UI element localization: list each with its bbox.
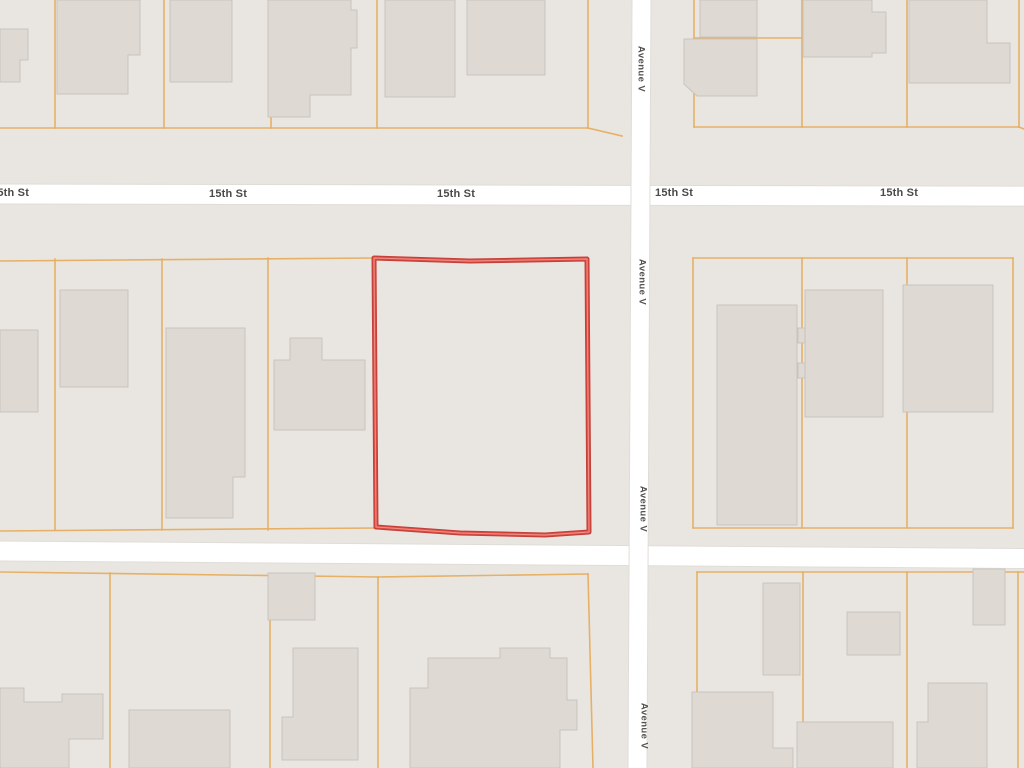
street-label-15th-st: 15th St <box>880 187 918 199</box>
street-label-avenue-v: Avenue V <box>639 703 650 749</box>
street-label-avenue-v: Avenue V <box>637 259 648 305</box>
building-footprint <box>166 328 245 518</box>
street-road[interactable] <box>0 541 1024 569</box>
parcel-boundary-line <box>0 528 376 531</box>
building-footprint <box>170 0 232 82</box>
building-footprint <box>797 722 893 768</box>
building-footprint <box>0 330 38 412</box>
parcel-boundary-line <box>0 258 374 261</box>
building-footprint <box>57 0 140 94</box>
building-footprint <box>0 688 103 768</box>
building-footprint <box>803 0 886 57</box>
building-footprint <box>385 0 455 97</box>
parcel-boundary-line <box>0 572 378 577</box>
parcel-boundary-line <box>588 574 593 768</box>
street-label-15th-st: 15th St <box>655 187 693 199</box>
building-footprint <box>410 648 577 768</box>
street-label-avenue-v: Avenue V <box>638 486 649 532</box>
building-footprint <box>798 328 805 343</box>
building-footprint <box>917 683 987 768</box>
street-label-15th-st: 15th St <box>0 187 29 199</box>
parcel-boundary-line <box>588 128 622 136</box>
map-layers <box>0 0 1024 768</box>
building-footprint <box>847 612 900 655</box>
street-label-15th-st: 15th St <box>437 188 475 200</box>
building-footprint <box>60 290 128 387</box>
selected-parcel-outline-core <box>374 258 589 535</box>
building-footprint <box>903 285 993 412</box>
building-footprint <box>467 0 545 75</box>
building-footprint <box>268 0 357 117</box>
building-footprint <box>763 583 800 675</box>
building-footprint <box>700 0 757 37</box>
selected-parcel-outline-mid <box>374 258 589 535</box>
building-footprint <box>798 363 805 378</box>
parcel-boundary-line <box>378 574 588 577</box>
building-footprint <box>692 692 793 768</box>
building-footprint <box>268 573 315 620</box>
building-footprint <box>129 710 230 768</box>
street-road[interactable] <box>628 0 651 768</box>
map-canvas[interactable]: 15th St 15th St 15th St 15th St 15th St … <box>0 0 1024 768</box>
building-footprint <box>909 0 1010 83</box>
building-footprint <box>0 29 28 82</box>
building-footprint <box>717 305 797 525</box>
building-footprint <box>684 39 757 96</box>
street-label-avenue-v: Avenue V <box>636 46 647 92</box>
building-footprint <box>973 569 1005 625</box>
street-label-15th-st: 15th St <box>209 188 247 200</box>
parcel-boundary-line <box>1019 127 1024 129</box>
building-footprint <box>274 338 365 430</box>
building-footprint <box>805 290 883 417</box>
street-road[interactable] <box>0 184 1024 206</box>
building-footprint <box>282 648 358 760</box>
selected-parcel-outline[interactable] <box>374 258 589 535</box>
